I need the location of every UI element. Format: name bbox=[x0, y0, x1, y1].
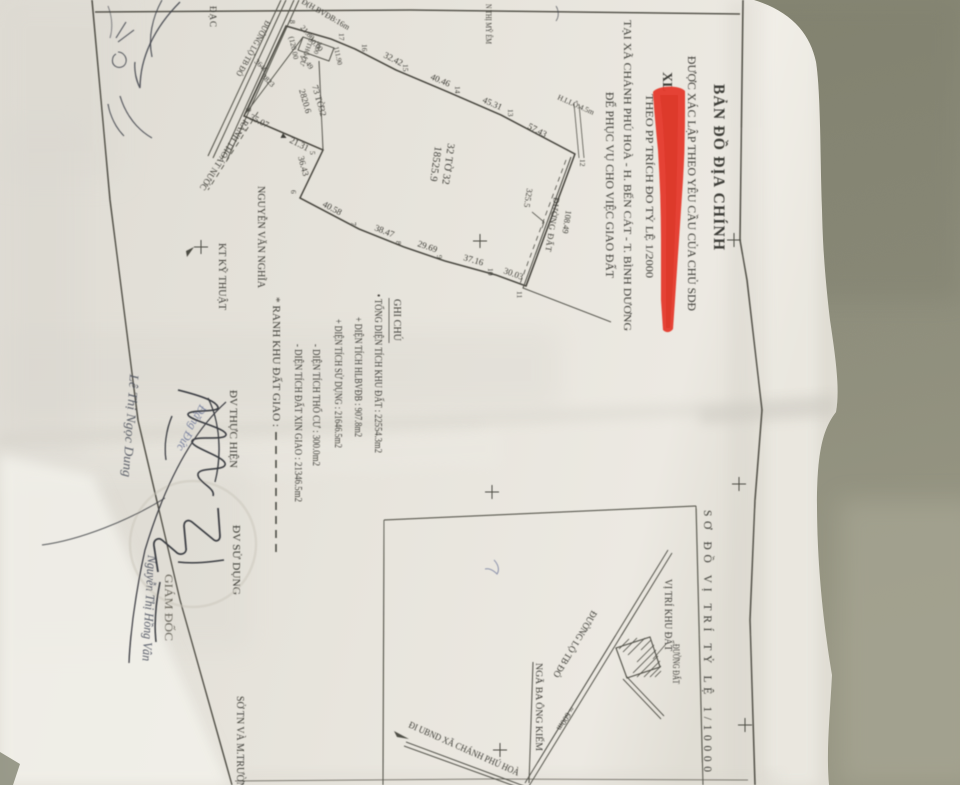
svg-text:3: 3 bbox=[244, 108, 253, 112]
svg-text:NGUYỄN VĂN NGHĨA: NGUYỄN VĂN NGHĨA bbox=[255, 186, 268, 289]
svg-text:GIÁM ĐỐC: GIÁM ĐỐC bbox=[162, 574, 177, 641]
svg-text:13: 13 bbox=[506, 109, 515, 117]
svg-text:* RANH KHU ĐẤT GIAO :: * RANH KHU ĐẤT GIAO : bbox=[270, 297, 283, 427]
svg-text:10: 10 bbox=[486, 268, 495, 276]
svg-text:- DIỆN TÍCH ĐẤT XIN GIAO : 213: - DIỆN TÍCH ĐẤT XIN GIAO : 21346.5m2 bbox=[292, 344, 305, 502]
svg-text:• TỔNG DIỆN TÍCH KHU ĐẤT : 22: • TỔNG DIỆN TÍCH KHU ĐẤT : 22554.3m2 bbox=[372, 294, 385, 453]
svg-text:16: 16 bbox=[360, 44, 369, 52]
svg-text:5: 5 bbox=[308, 151, 317, 155]
svg-text:6: 6 bbox=[289, 190, 298, 194]
svg-text:TẠI XÃ CHÁNH PHÚ HOÀ - H. BẾN: TẠI XÃ CHÁNH PHÚ HOÀ - H. BẾN CÁT - T. B… bbox=[621, 20, 634, 331]
svg-text:ĐƯỢC XÁC LẬP THEO YÊU CẦU CỦA: ĐƯỢC XÁC LẬP THEO YÊU CẦU CỦA CHỦ SDĐ bbox=[685, 56, 700, 311]
svg-text:7: 7 bbox=[349, 222, 358, 226]
svg-text:N THỊ MỸ ÊM: N THỊ MỸ ÊM bbox=[484, 4, 494, 44]
svg-text:8: 8 bbox=[288, 20, 297, 24]
svg-text:+ DIỆN TÍCH HLBVĐB : 907.8m2: + DIỆN TÍCH HLBVĐB : 907.8m2 bbox=[352, 317, 364, 437]
svg-text:THEO PP TRÍCH ĐO TỶ LỆ 1/2000: THEO PP TRÍCH ĐO TỶ LỆ 1/2000 bbox=[643, 94, 655, 279]
svg-text:11: 11 bbox=[515, 291, 524, 298]
svg-text:12: 12 bbox=[578, 159, 587, 167]
svg-text:SỞ TN VÀ M.TRƯỜNG: SỞ TN VÀ M.TRƯỜNG bbox=[234, 696, 246, 785]
svg-text:GHI CHÚ: GHI CHÚ bbox=[391, 299, 403, 341]
svg-text:14: 14 bbox=[453, 86, 462, 94]
svg-text:- DIỆN TÍCH THỔ CƯ : 300.0m2: - DIỆN TÍCH THỔ CƯ : 300.0m2 bbox=[310, 344, 323, 466]
svg-text:ĐỂ PHỤC VỤ CHO VIỆC GIAO ĐẤT: ĐỂ PHỤC VỤ CHO VIỆC GIAO ĐẤT bbox=[603, 92, 618, 278]
svg-text:ĐƯỜNG ĐẤT: ĐƯỜNG ĐẤT bbox=[671, 644, 681, 684]
svg-text:BẢN ĐỒ ĐỊA CHÍNH: BẢN ĐỒ ĐỊA CHÍNH bbox=[710, 84, 728, 250]
svg-text:8: 8 bbox=[394, 241, 403, 245]
svg-text:+ DIỆN TÍCH SỬ DỤNG : 21646.5m: + DIỆN TÍCH SỬ DỤNG : 21646.5m2 bbox=[332, 319, 344, 448]
svg-text:9: 9 bbox=[435, 255, 444, 259]
svg-text:ĐẠC: ĐẠC bbox=[208, 6, 218, 28]
svg-text:VỊ TRÍ KHU ĐẤT: VỊ TRÍ KHU ĐẤT bbox=[662, 579, 675, 651]
svg-text:KT KỸ THUẬT: KT KỸ THUẬT bbox=[216, 243, 228, 311]
svg-text:15: 15 bbox=[401, 64, 410, 72]
svg-text:ĐV THỰC HIỆN: ĐV THỰC HIỆN bbox=[227, 390, 239, 468]
svg-text:17: 17 bbox=[337, 33, 346, 41]
